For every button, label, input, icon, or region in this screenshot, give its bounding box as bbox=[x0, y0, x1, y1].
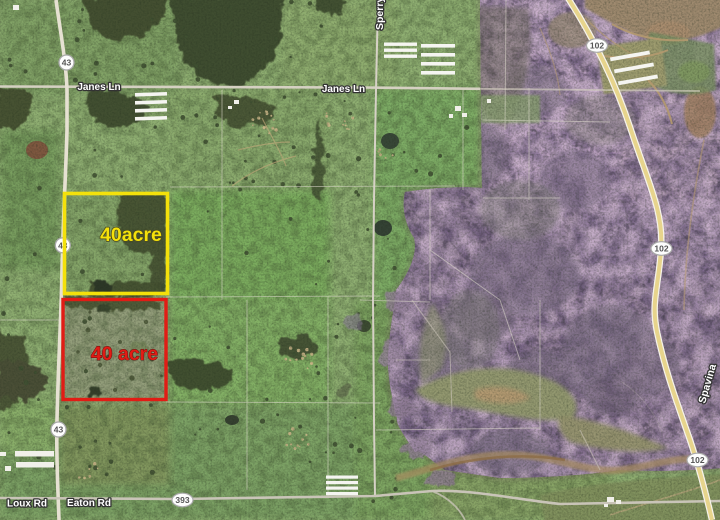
svg-text:Sperry: Sperry bbox=[374, 0, 386, 30]
svg-text:Janes Ln: Janes Ln bbox=[322, 84, 365, 95]
svg-text:102: 102 bbox=[590, 41, 604, 51]
svg-text:Loux Rd: Loux Rd bbox=[7, 499, 47, 510]
svg-text:102: 102 bbox=[654, 244, 668, 254]
svg-text:43: 43 bbox=[54, 425, 64, 435]
svg-text:40acre: 40acre bbox=[100, 224, 162, 246]
svg-text:393: 393 bbox=[175, 495, 189, 505]
svg-text:102: 102 bbox=[690, 455, 704, 465]
svg-text:43: 43 bbox=[62, 58, 72, 68]
svg-text:Eaton Rd: Eaton Rd bbox=[67, 498, 111, 509]
svg-text:Janes Ln: Janes Ln bbox=[77, 82, 120, 93]
svg-text:40 acre: 40 acre bbox=[91, 343, 158, 365]
